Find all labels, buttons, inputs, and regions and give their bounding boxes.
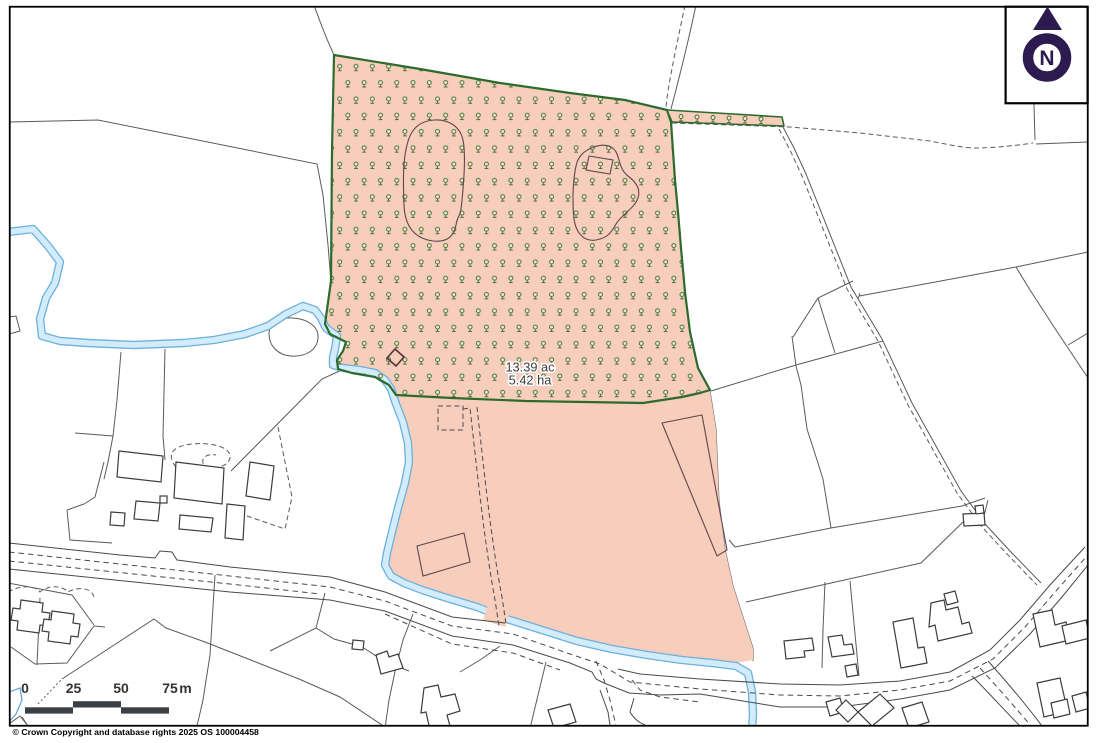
svg-text:5.42 ha: 5.42 ha	[509, 373, 553, 388]
svg-text:N: N	[1039, 47, 1054, 70]
svg-text:0: 0	[21, 680, 29, 696]
svg-text:m: m	[179, 680, 191, 696]
svg-text:75: 75	[162, 680, 178, 696]
svg-text:© Crown Copyright and database: © Crown Copyright and database rights 20…	[13, 727, 260, 737]
svg-text:50: 50	[113, 680, 129, 696]
svg-text:25: 25	[66, 680, 82, 696]
